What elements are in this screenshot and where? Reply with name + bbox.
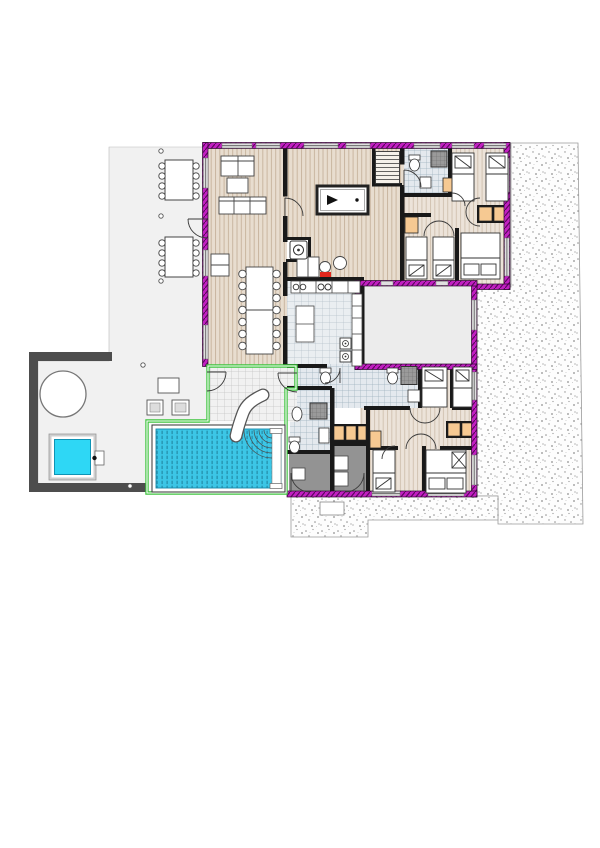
red-appliance <box>320 272 331 277</box>
bed-single <box>433 237 454 279</box>
closet <box>405 217 418 233</box>
bed-single <box>373 450 395 492</box>
closet <box>334 426 344 440</box>
sink <box>408 390 420 402</box>
apron-pad <box>320 502 344 515</box>
outdoor-table-north <box>159 160 199 200</box>
fence-top <box>29 352 112 361</box>
sofa <box>219 197 266 214</box>
billiard-table <box>317 186 368 214</box>
closet <box>479 207 492 221</box>
bed-single <box>422 367 447 407</box>
hot-tub <box>49 434 104 480</box>
shower <box>401 367 417 385</box>
shelf <box>292 468 305 480</box>
sink <box>420 177 431 188</box>
kitchen-tall-units <box>352 294 362 366</box>
closet <box>448 423 460 436</box>
bed-single <box>486 153 508 201</box>
shelf <box>334 472 348 486</box>
floor-plan-drawing <box>0 0 600 848</box>
closet <box>346 426 356 440</box>
closet <box>358 426 366 440</box>
side-table <box>158 378 179 393</box>
toilet <box>410 159 420 171</box>
gray-room-floor <box>360 285 472 365</box>
pool-step <box>270 484 282 489</box>
kitchen-counter <box>291 281 360 293</box>
toilet <box>290 441 300 453</box>
bed-single <box>406 237 427 279</box>
round-table <box>40 371 86 417</box>
coffee-table <box>227 178 248 193</box>
closet <box>370 431 381 448</box>
outdoor-table-south <box>159 237 199 277</box>
pool-water <box>156 429 281 488</box>
shower <box>310 403 327 419</box>
shelf <box>334 456 348 470</box>
fence-left <box>29 352 38 492</box>
pool-bench <box>272 431 281 486</box>
cabinet <box>319 428 329 443</box>
sideboard <box>211 254 229 276</box>
wardrobe-crossed <box>452 452 466 468</box>
bed-single <box>453 367 472 407</box>
loveseat <box>221 156 254 176</box>
washing-machine <box>290 241 307 259</box>
sink <box>292 407 302 421</box>
pool-step <box>270 429 282 434</box>
bed-double <box>461 233 500 279</box>
round-side-table <box>334 257 347 270</box>
closet <box>443 178 453 192</box>
shower <box>431 151 447 167</box>
floor-plan-page <box>0 0 600 848</box>
gravel-apron-south <box>291 496 498 537</box>
toilet <box>388 372 398 384</box>
staircase <box>376 152 400 184</box>
